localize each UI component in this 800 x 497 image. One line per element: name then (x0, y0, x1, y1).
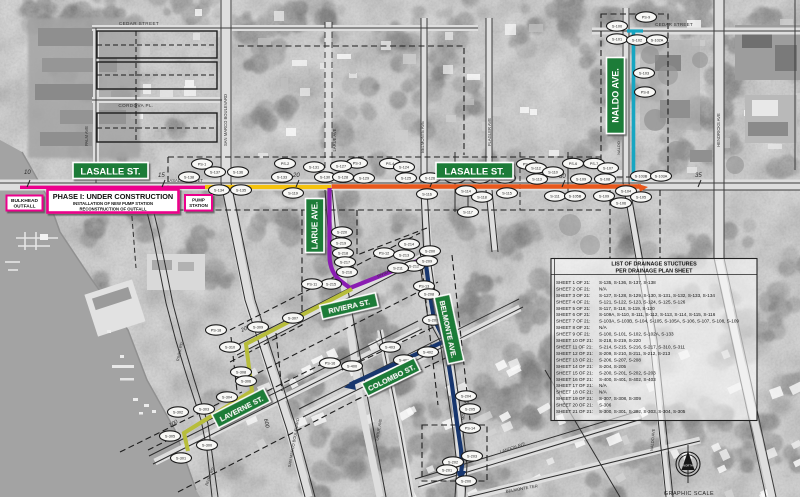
svg-text:S-306: S-306 (241, 379, 251, 383)
svg-text:S-400: S-400 (347, 364, 357, 368)
svg-text:SHEET 13 OF 21:: SHEET 13 OF 21: (556, 357, 593, 362)
svg-text:S-200: S-200 (425, 249, 435, 253)
svg-text:STATION: STATION (189, 203, 208, 208)
svg-text:S-209: S-209 (422, 259, 432, 263)
svg-text:S-218, S-219, S-220: S-218, S-219, S-220 (599, 338, 641, 343)
svg-text:NALDO AVE.: NALDO AVE. (611, 68, 621, 123)
svg-text:SHEET 15 OF 21:: SHEET 15 OF 21: (556, 370, 593, 375)
svg-text:PS-11: PS-11 (307, 282, 317, 286)
svg-text:S-303: S-303 (199, 407, 209, 411)
svg-text:S-100, S-101, S-102, S-102A, S: S-100, S-101, S-102, S-102A, S-133 (599, 332, 674, 337)
svg-text:S-103: S-103 (639, 71, 649, 75)
svg-text:PS-4: PS-4 (386, 162, 394, 166)
svg-text:S-304: S-304 (222, 395, 232, 399)
svg-text:S-126: S-126 (425, 176, 435, 180)
svg-text:S-113: S-113 (532, 177, 542, 181)
svg-text:S-208: S-208 (424, 292, 434, 296)
svg-text:S-214, S-215, S-216, S-217, S-: S-214, S-215, S-216, S-217, S-310, S-311 (599, 345, 685, 350)
svg-text:RECONSTRUCTION OF OUTFALL: RECONSTRUCTION OF OUTFALL (80, 206, 147, 211)
svg-text:S-306: S-306 (599, 403, 612, 408)
svg-text:S-215: S-215 (326, 282, 336, 286)
svg-text:S-117: S-117 (463, 210, 473, 214)
svg-text:LARUE AVE.: LARUE AVE. (311, 202, 320, 250)
svg-text:S-211: S-211 (393, 266, 403, 270)
svg-text:S-103B: S-103B (635, 174, 648, 178)
svg-text:NALDO: NALDO (616, 141, 621, 155)
svg-text:PHASE I: UNDER CONSTRUCTION: PHASE I: UNDER CONSTRUCTION (53, 192, 173, 201)
svg-text:S-307, S-308, S-309: S-307, S-308, S-309 (599, 396, 641, 401)
svg-text:S-108: S-108 (600, 177, 610, 181)
svg-text:S-305: S-305 (165, 434, 175, 438)
svg-text:SHEET 9 OF 21:: SHEET 9 OF 21: (556, 332, 590, 337)
svg-text:PS-12: PS-12 (379, 251, 390, 255)
svg-text:S-135, S-136, S-137, S-138: S-135, S-136, S-137, S-138 (599, 280, 656, 285)
svg-text:SHEET 7 OF 21:: SHEET 7 OF 21: (556, 319, 590, 324)
svg-text:SHEET 2 OF 21:: SHEET 2 OF 21: (556, 286, 590, 291)
svg-text:S-219: S-219 (336, 241, 346, 245)
svg-text:S-118: S-118 (477, 195, 487, 199)
svg-text:SHEET 18 OF 21:: SHEET 18 OF 21: (556, 390, 593, 395)
svg-text:S-135: S-135 (236, 188, 246, 192)
svg-text:S-309: S-309 (253, 325, 263, 329)
svg-text:S-137: S-137 (210, 170, 220, 174)
svg-text:S-204, S-205: S-204, S-205 (599, 364, 627, 369)
svg-text:PS-6: PS-6 (569, 162, 577, 166)
svg-text:SHEET 3 OF 21:: SHEET 3 OF 21: (556, 293, 590, 298)
svg-text:S-105B: S-105B (569, 194, 582, 198)
svg-text:PER DRAINAGE PLAN SHEET: PER DRAINAGE PLAN SHEET (616, 269, 694, 275)
svg-text:SHEET 20 OF 21:: SHEET 20 OF 21: (556, 403, 593, 408)
svg-text:S-203: S-203 (467, 454, 477, 458)
svg-text:S-109A, S-110, S-111, S-112, S: S-109A, S-110, S-111, S-112, S-113, S-11… (599, 312, 716, 317)
svg-text:S-403: S-403 (385, 345, 395, 349)
svg-text:S-110: S-110 (548, 170, 558, 174)
svg-text:S-205: S-205 (465, 407, 475, 411)
svg-text:S-133: S-133 (277, 175, 287, 179)
svg-text:S-115: S-115 (502, 191, 512, 195)
svg-text:PS-3: PS-3 (353, 161, 361, 165)
svg-text:SHEET 4 OF 21:: SHEET 4 OF 21: (556, 299, 590, 304)
svg-text:CORDOVA PL.: CORDOVA PL. (118, 103, 153, 108)
svg-text:PS-7: PS-7 (590, 162, 598, 166)
svg-text:LARUE AVE: LARUE AVE (332, 128, 337, 151)
svg-text:S-212: S-212 (409, 264, 419, 268)
svg-text:OUTFALL: OUTFALL (13, 204, 35, 210)
svg-text:PUMP: PUMP (192, 198, 205, 203)
svg-text:CEDAR STREET: CEDAR STREET (655, 22, 693, 27)
svg-text:N/A: N/A (599, 390, 608, 395)
svg-text:PALM AVE: PALM AVE (84, 126, 89, 146)
svg-text:PS-18: PS-18 (211, 328, 222, 332)
svg-text:S-200: S-200 (461, 479, 471, 483)
svg-text:S-214: S-214 (404, 242, 414, 246)
svg-text:PS-13: PS-13 (419, 284, 430, 288)
svg-text:S-218: S-218 (338, 251, 348, 255)
svg-text:N/A: N/A (599, 286, 608, 291)
svg-text:S-102A: S-102A (651, 38, 664, 42)
svg-text:35: 35 (695, 173, 702, 179)
svg-text:SHEET 8 OF 21:: SHEET 8 OF 21: (556, 325, 590, 330)
svg-text:HENDRICKS AVE: HENDRICKS AVE (716, 113, 721, 147)
svg-text:N/A: N/A (599, 383, 608, 388)
svg-text:S-106: S-106 (616, 201, 626, 205)
svg-text:S-117, S-118, S-119, S-120: S-117, S-118, S-119, S-120 (599, 306, 655, 311)
svg-text:FLAGLER AVE: FLAGLER AVE (487, 118, 492, 146)
svg-text:S-104: S-104 (621, 189, 631, 193)
svg-text:S-307: S-307 (288, 316, 298, 320)
svg-text:S-220: S-220 (337, 230, 347, 234)
svg-text:PS-16: PS-16 (325, 361, 336, 365)
svg-text:S-125: S-125 (401, 176, 411, 180)
svg-text:CEDAR STREET: CEDAR STREET (119, 21, 159, 26)
svg-text:S-402: S-402 (423, 350, 433, 354)
svg-text:S-202: S-202 (448, 460, 458, 464)
svg-text:LASALLE ST.: LASALLE ST. (444, 167, 504, 178)
svg-text:SHEET 17 OF 21:: SHEET 17 OF 21: (556, 383, 593, 388)
svg-text:S-109: S-109 (599, 194, 609, 198)
svg-text:S-121, S-122, S-123, S-124, S-: S-121, S-122, S-123, S-124, S-125, S-126 (599, 299, 686, 304)
svg-text:S-129: S-129 (359, 176, 369, 180)
svg-text:S-130: S-130 (320, 175, 330, 179)
svg-text:S-217: S-217 (340, 260, 350, 264)
svg-text:S-103A: S-103A (655, 174, 668, 178)
svg-text:SHEET 5 OF 21:: SHEET 5 OF 21: (556, 306, 590, 311)
svg-text:S-101: S-101 (612, 37, 622, 41)
svg-text:SHEET 19 OF 21:: SHEET 19 OF 21: (556, 396, 593, 401)
svg-text:BULKHEAD: BULKHEAD (11, 198, 38, 204)
svg-text:LIST OF DRAINAGE STUCTURES: LIST OF DRAINAGE STUCTURES (611, 262, 697, 268)
svg-text:S-127: S-127 (336, 164, 346, 168)
svg-text:NORTH: NORTH (683, 464, 693, 468)
svg-text:S-103A, S-103B, S-104, S-105,: S-103A, S-103B, S-104, S-105, S-105A, S-… (599, 319, 739, 324)
svg-text:PS-14: PS-14 (465, 426, 476, 430)
svg-text:S-134: S-134 (214, 188, 224, 192)
svg-text:S-308: S-308 (236, 370, 246, 374)
svg-text:S-209, S-210, S-211, S-212, S-: S-209, S-210, S-211, S-212, S-213 (599, 351, 671, 356)
svg-text:S-128: S-128 (338, 175, 348, 179)
svg-text:S-131: S-131 (309, 165, 319, 169)
svg-text:SHEET 12 OF 21:: SHEET 12 OF 21: (556, 351, 593, 356)
svg-text:SAN MARCO BOULEVARD: SAN MARCO BOULEVARD (223, 94, 228, 146)
svg-text:S-124: S-124 (399, 165, 409, 169)
svg-text:SHEET 1 OF 21:: SHEET 1 OF 21: (556, 280, 590, 285)
svg-text:S-216: S-216 (342, 270, 352, 274)
svg-text:S-102: S-102 (632, 38, 642, 42)
svg-text:S-138: S-138 (184, 175, 194, 179)
svg-text:S-127, S-128, S-129, S-130, S-: S-127, S-128, S-129, S-130, S-131, S-132… (599, 293, 715, 298)
svg-text:S-213: S-213 (399, 253, 409, 257)
svg-text:S-204: S-204 (461, 394, 471, 398)
svg-text:PS-1: PS-1 (198, 162, 206, 166)
svg-text:S-301: S-301 (176, 456, 186, 460)
svg-text:S-107: S-107 (603, 166, 613, 170)
svg-text:S-302: S-302 (173, 410, 183, 414)
svg-text:S-310: S-310 (225, 345, 235, 349)
svg-text:S-206, S-207, S-208: S-206, S-207, S-208 (599, 357, 641, 362)
svg-text:S-114: S-114 (461, 189, 471, 193)
svg-text:N/A: N/A (599, 325, 608, 330)
svg-text:S-100: S-100 (612, 24, 622, 28)
svg-text:S-105: S-105 (636, 195, 646, 199)
svg-text:S-300: S-300 (202, 443, 212, 447)
svg-text:LASALLE ST.: LASALLE ST. (80, 167, 140, 178)
svg-text:S-119: S-119 (288, 191, 298, 195)
svg-text:PS-2: PS-2 (281, 162, 289, 166)
svg-text:GRAPHIC SCALE: GRAPHIC SCALE (664, 491, 714, 497)
svg-text:S-207: S-207 (428, 318, 438, 322)
svg-text:20: 20 (292, 173, 300, 179)
svg-text:S-400, S-401, S-402, S-403: S-400, S-401, S-402, S-403 (599, 377, 656, 382)
svg-text:SHEET 10 OF 21:: SHEET 10 OF 21: (556, 338, 593, 343)
svg-text:SHEET 21 OF 21:: SHEET 21 OF 21: (556, 409, 593, 414)
svg-text:S-136: S-136 (233, 170, 243, 174)
svg-text:S-300, S-301, S-302, S-303, S-: S-300, S-301, S-302, S-303, S-304, S-305 (599, 409, 686, 414)
svg-text:10: 10 (24, 170, 31, 176)
svg-text:S-201: S-201 (442, 468, 452, 472)
svg-text:SHEET 14 OF 21:: SHEET 14 OF 21: (556, 364, 593, 369)
svg-text:S-200, S-201, S-202, S-203: S-200, S-201, S-202, S-203 (599, 370, 656, 375)
svg-text:SHEET 6 OF 21:: SHEET 6 OF 21: (556, 312, 590, 317)
svg-text:SHEET 11 OF 21:: SHEET 11 OF 21: (556, 345, 593, 350)
svg-text:PS-9: PS-9 (642, 15, 650, 19)
svg-text:BELMONTE AVE: BELMONTE AVE (420, 121, 425, 153)
svg-text:15: 15 (158, 173, 165, 179)
svg-text:SHEET 16 OF 21:: SHEET 16 OF 21: (556, 377, 593, 382)
svg-text:PS-8: PS-8 (641, 90, 649, 94)
svg-text:S-116: S-116 (422, 192, 432, 196)
svg-text:S-109: S-109 (576, 177, 586, 181)
svg-text:S-111: S-111 (550, 194, 560, 198)
svg-text:S-112: S-112 (531, 166, 541, 170)
